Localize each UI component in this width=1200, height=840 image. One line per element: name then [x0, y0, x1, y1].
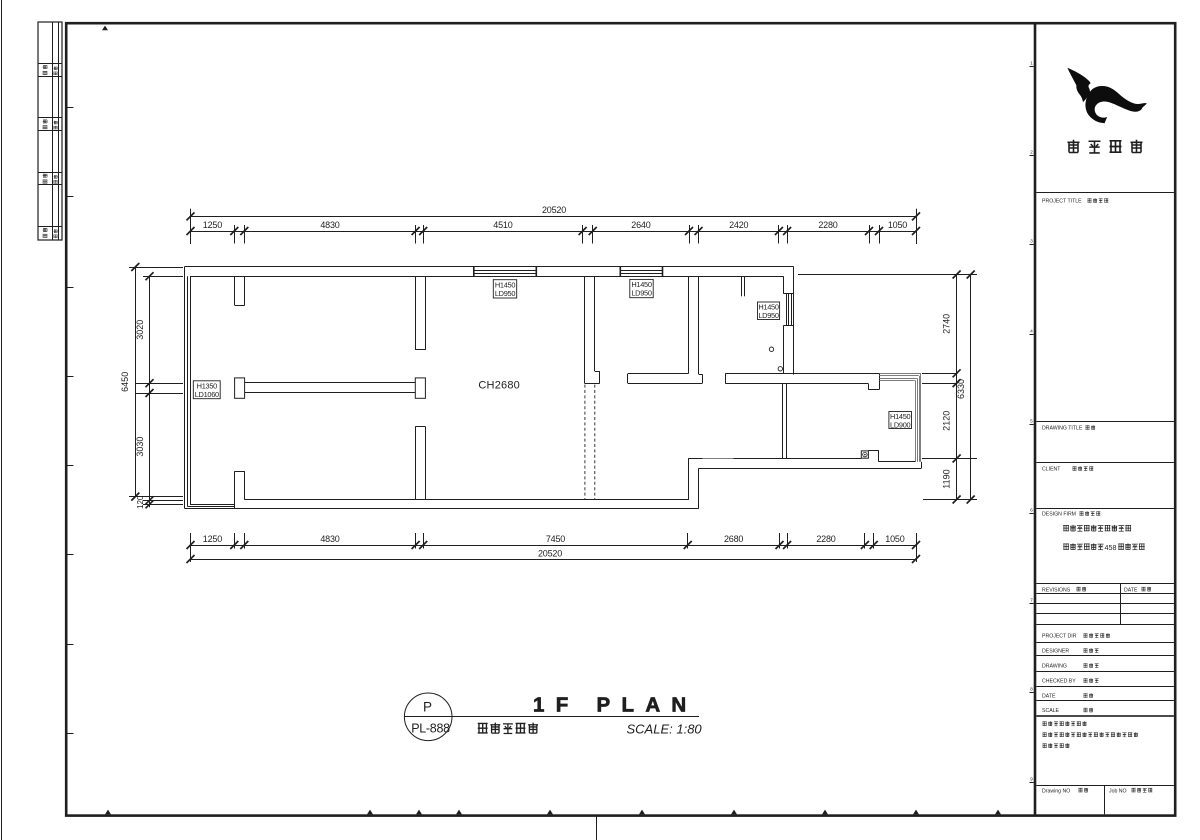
- svg-text:6330: 6330: [956, 379, 966, 399]
- svg-text:2280: 2280: [818, 220, 837, 230]
- svg-text:2640: 2640: [631, 220, 650, 230]
- svg-text:DRAWING TITLE: DRAWING TITLE: [1042, 426, 1083, 432]
- svg-text:LD950: LD950: [758, 311, 778, 320]
- svg-text:P: P: [423, 700, 432, 715]
- svg-text:DESIGNER: DESIGNER: [1042, 649, 1069, 655]
- svg-text:LD950: LD950: [631, 289, 651, 298]
- svg-text:1F PLAN: 1F PLAN: [533, 694, 698, 717]
- svg-text:3030: 3030: [135, 437, 145, 457]
- svg-text:PL-888: PL-888: [411, 722, 450, 736]
- svg-text:4830: 4830: [320, 534, 339, 544]
- svg-text:2680: 2680: [724, 534, 743, 544]
- svg-text:120: 120: [136, 495, 145, 509]
- svg-text:REVISIONS: REVISIONS: [1042, 588, 1071, 594]
- svg-text:458: 458: [1105, 543, 1117, 552]
- svg-text:2740: 2740: [942, 314, 952, 334]
- svg-text:PROJECT TITLE: PROJECT TITLE: [1042, 199, 1082, 205]
- svg-text:LD950: LD950: [495, 289, 515, 298]
- svg-text:1190: 1190: [942, 469, 952, 488]
- svg-text:DATE: DATE: [1042, 694, 1056, 700]
- svg-text:1050: 1050: [885, 534, 904, 544]
- svg-text:DRAWING: DRAWING: [1042, 664, 1067, 670]
- svg-text:4510: 4510: [493, 220, 512, 230]
- svg-text:LD900: LD900: [890, 421, 910, 430]
- svg-text:2120: 2120: [942, 411, 952, 431]
- svg-text:6450: 6450: [120, 372, 130, 392]
- svg-text:DATE: DATE: [1124, 588, 1138, 594]
- svg-text:7450: 7450: [546, 534, 565, 544]
- svg-text:2420: 2420: [729, 220, 748, 230]
- svg-text:4830: 4830: [320, 220, 339, 230]
- svg-text:SCALE: 1:80: SCALE: 1:80: [627, 722, 703, 737]
- svg-text:PROJECT DIR: PROJECT DIR: [1042, 634, 1077, 640]
- svg-text:SCALE: SCALE: [1042, 708, 1060, 714]
- svg-text:1250: 1250: [203, 220, 222, 230]
- svg-text:Drawing NO: Drawing NO: [1042, 789, 1070, 795]
- svg-text:LD1060: LD1060: [195, 390, 219, 399]
- svg-text:CH2680: CH2680: [478, 380, 520, 392]
- svg-text:2280: 2280: [816, 534, 835, 544]
- svg-text:1250: 1250: [203, 534, 222, 544]
- svg-text:DESIGN FIRM: DESIGN FIRM: [1042, 512, 1076, 518]
- svg-text:3020: 3020: [135, 320, 145, 340]
- svg-text:CLIENT: CLIENT: [1042, 467, 1061, 473]
- svg-text:1050: 1050: [888, 220, 907, 230]
- svg-text:20520: 20520: [538, 548, 562, 558]
- svg-text:CHECKED BY: CHECKED BY: [1042, 679, 1076, 685]
- svg-text:Job NO: Job NO: [1109, 789, 1127, 795]
- svg-text:20520: 20520: [542, 205, 566, 215]
